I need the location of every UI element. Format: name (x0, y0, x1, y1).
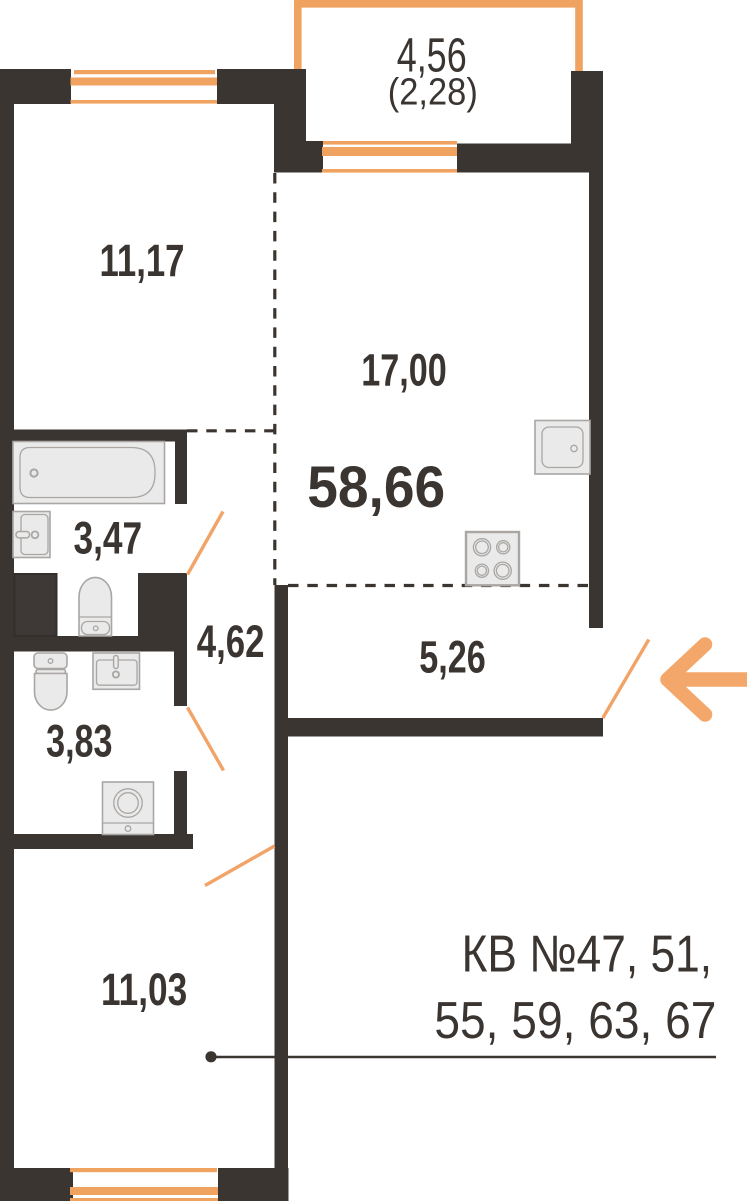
svg-text:11,17: 11,17 (100, 235, 185, 286)
svg-text:58,66: 58,66 (307, 455, 445, 520)
svg-text:17,00: 17,00 (361, 345, 447, 396)
svg-text:4,62: 4,62 (197, 616, 265, 667)
svg-text:КВ №47, 51,: КВ №47, 51, (462, 926, 712, 984)
svg-text:(2,28): (2,28) (388, 72, 478, 114)
svg-text:3,83: 3,83 (46, 715, 112, 766)
svg-text:55, 59, 63, 67: 55, 59, 63, 67 (434, 992, 716, 1050)
svg-text:3,47: 3,47 (73, 513, 142, 564)
svg-text:5,26: 5,26 (419, 632, 486, 683)
svg-text:11,03: 11,03 (101, 964, 187, 1015)
